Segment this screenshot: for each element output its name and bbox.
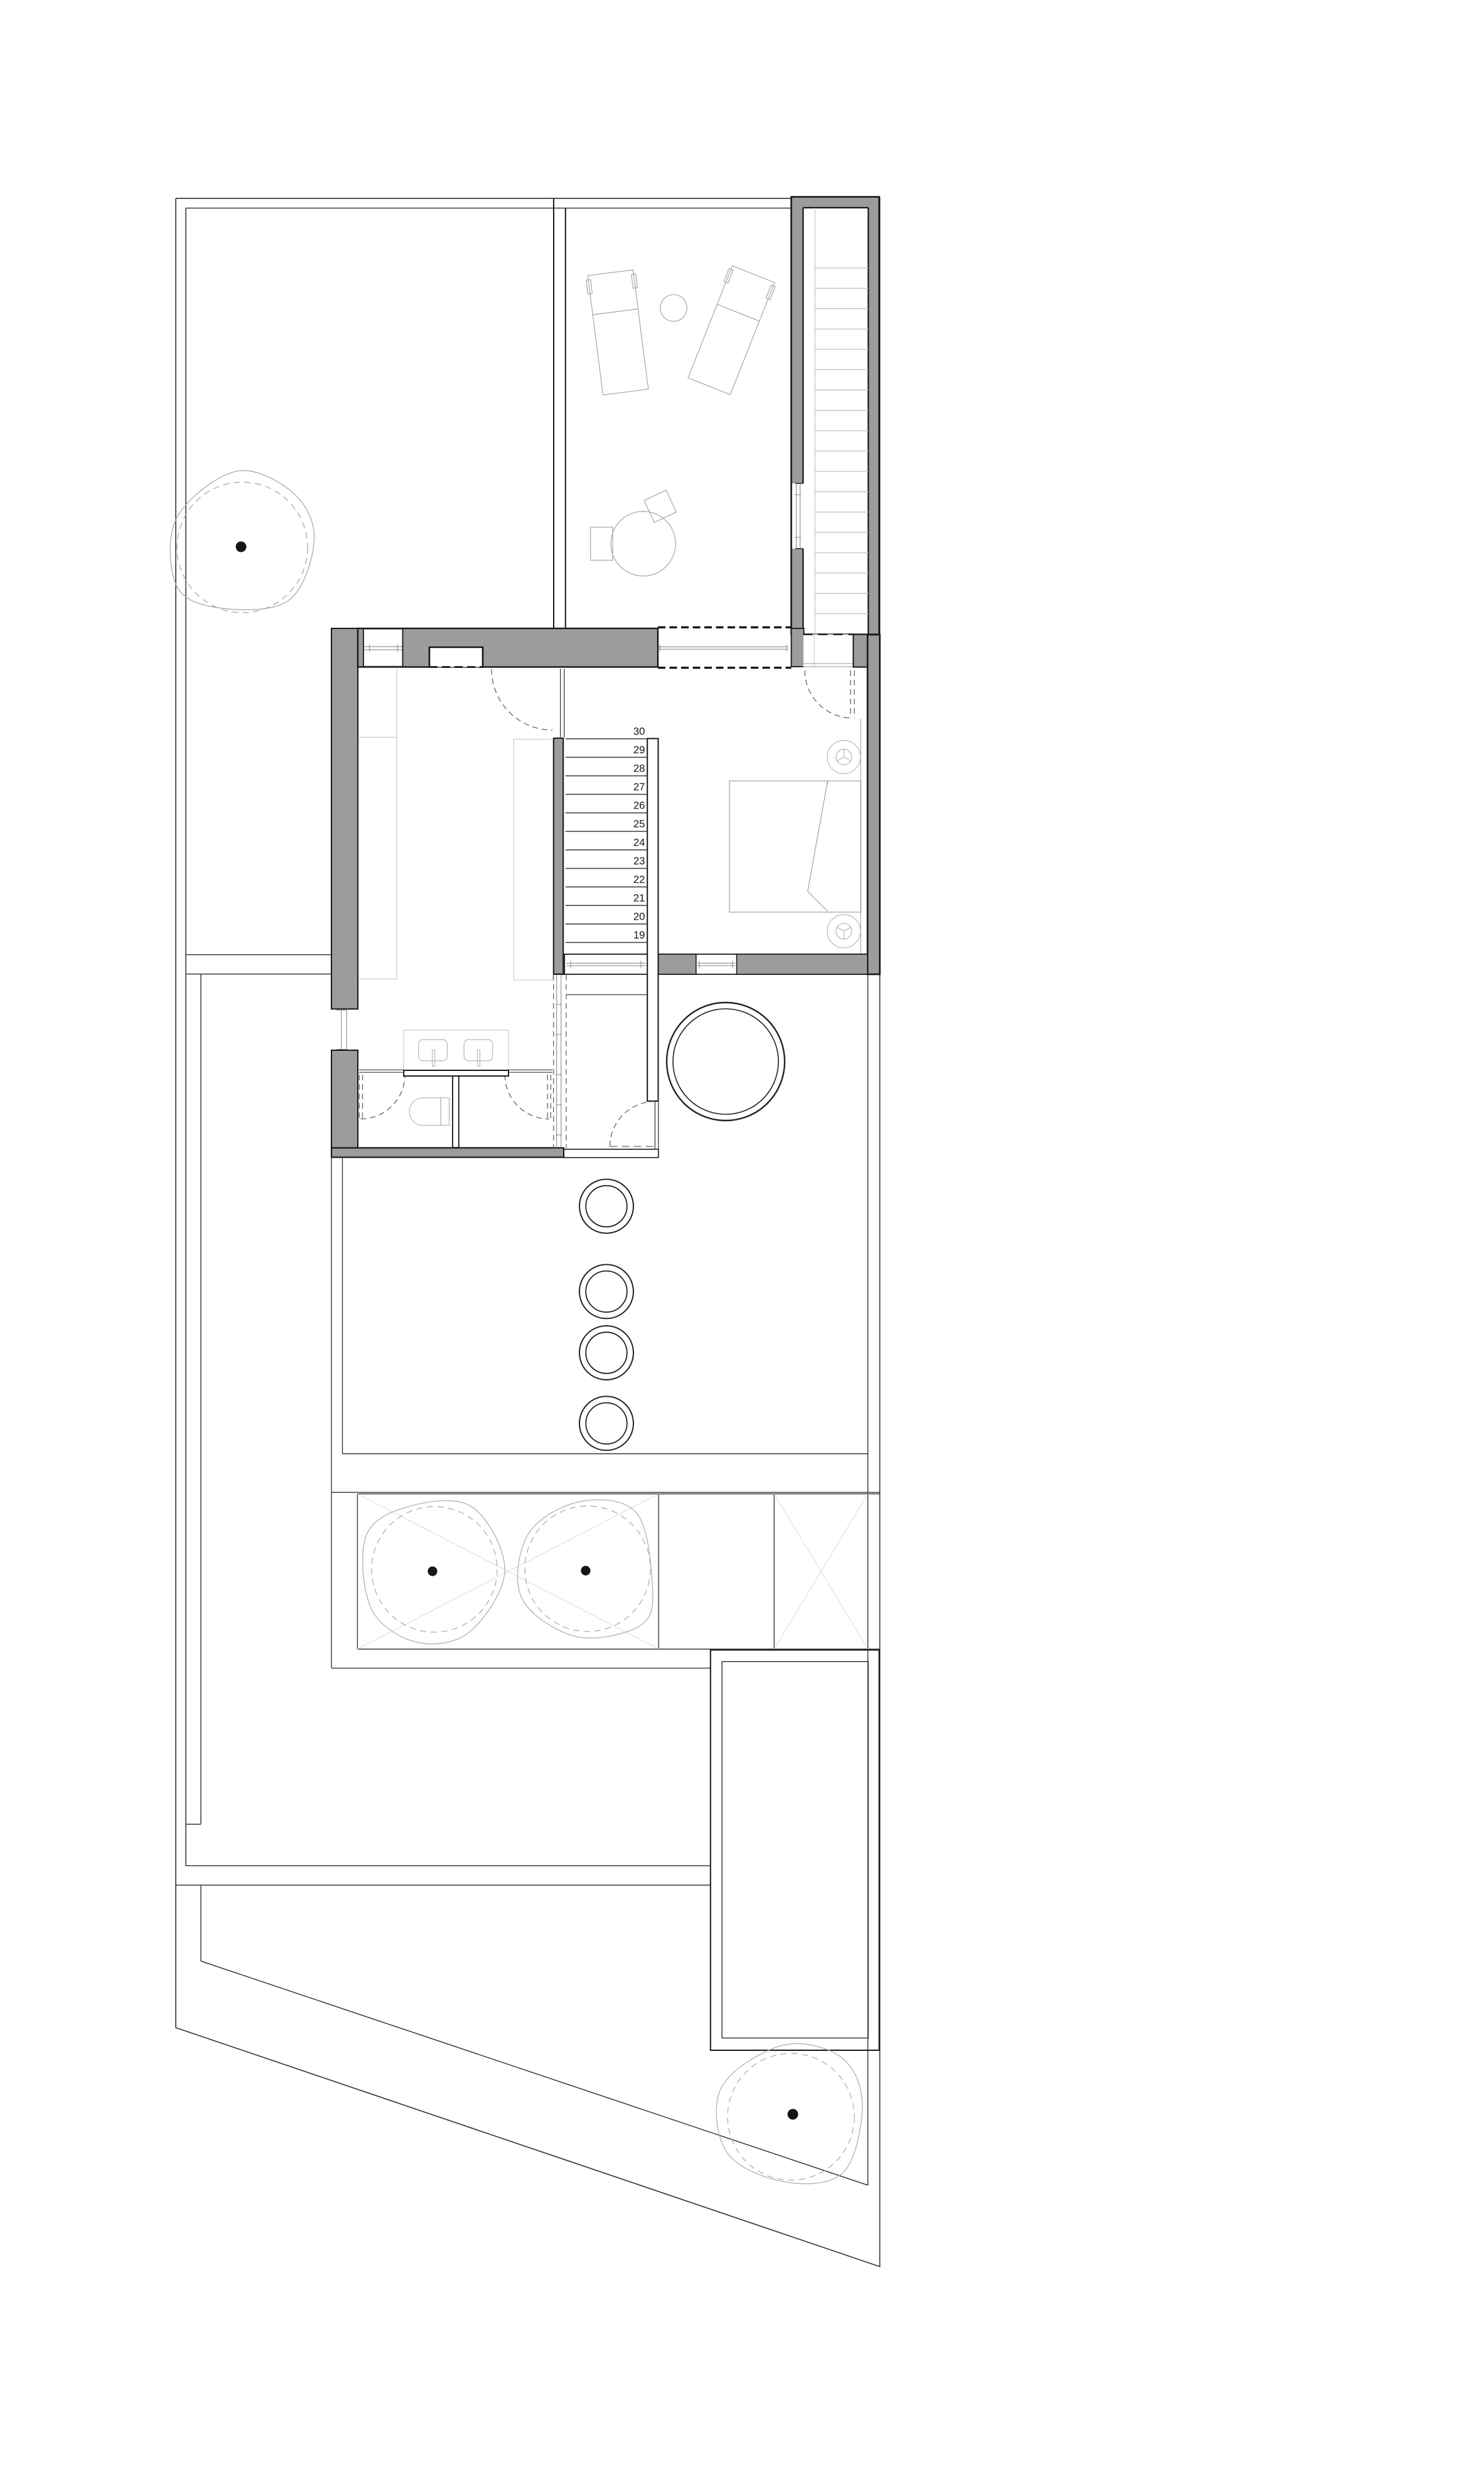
svg-text:27: 27 [633, 781, 645, 793]
svg-text:26: 26 [633, 800, 645, 812]
svg-text:23: 23 [633, 855, 645, 867]
svg-text:20: 20 [633, 911, 645, 923]
svg-text:25: 25 [633, 818, 645, 830]
svg-text:29: 29 [633, 744, 645, 756]
svg-text:19: 19 [633, 929, 645, 941]
svg-text:28: 28 [633, 763, 645, 775]
svg-text:22: 22 [633, 874, 645, 886]
svg-text:21: 21 [633, 892, 645, 904]
svg-text:24: 24 [633, 837, 645, 849]
svg-text:30: 30 [633, 726, 645, 738]
